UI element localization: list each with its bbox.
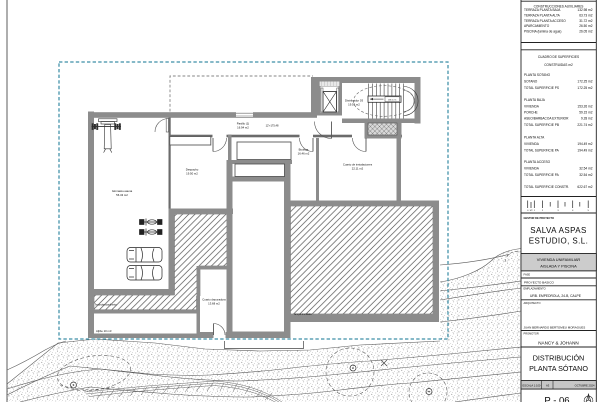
svg-text:ESCALA 1:100: ESCALA 1:100 xyxy=(523,383,541,387)
svg-text:63.73 m2: 63.73 m2 xyxy=(579,14,593,18)
svg-text:SOTANO: SOTANO xyxy=(524,80,538,84)
svg-text:DISTRIBUCIÓN: DISTRIBUCIÓN xyxy=(533,354,585,363)
svg-text:PLANTA BAJA: PLANTA BAJA xyxy=(524,98,546,102)
svg-text:VIVIENDA: VIVIENDA xyxy=(524,167,540,171)
svg-text:26.05 m2: 26.05 m2 xyxy=(579,29,593,33)
svg-text:59.15 m2: 59.15 m2 xyxy=(579,111,593,115)
svg-text:PLANTA SÓTANO: PLANTA SÓTANO xyxy=(529,364,588,373)
svg-text:22.11 m2: 22.11 m2 xyxy=(352,167,364,171)
svg-text:Tendedero-jardineria: Tendedero-jardineria xyxy=(95,304,118,307)
svg-text:P - 06: P - 06 xyxy=(544,396,569,402)
svg-text:622.67 m2: 622.67 m2 xyxy=(577,185,592,189)
svg-text:9.28 m2: 9.28 m2 xyxy=(581,117,593,121)
svg-text:19.50 m2: 19.50 m2 xyxy=(186,172,198,176)
svg-text:TERRAZA PLANTA ALTA: TERRAZA PLANTA ALTA xyxy=(524,14,561,18)
svg-text:TOTAL SUPERFICIE PA: TOTAL SUPERFICIE PA xyxy=(524,149,560,153)
svg-text:26.50 m2: 26.50 m2 xyxy=(579,24,593,28)
svg-text:132.98 m2: 132.98 m2 xyxy=(577,8,592,12)
svg-text:194.49 m2: 194.49 m2 xyxy=(577,142,592,146)
svg-text:16.46 m2: 16.46 m2 xyxy=(298,152,310,156)
svg-text:CUADRO DE SUPERFICIES: CUADRO DE SUPERFICIES xyxy=(538,55,579,59)
svg-text:VIVIENDA: VIVIENDA xyxy=(524,105,540,109)
svg-text:56.43 m2: 56.43 m2 xyxy=(116,193,128,197)
svg-text:SALVA ASPAS: SALVA ASPAS xyxy=(530,226,586,235)
svg-text:PLANTA ALTA: PLANTA ALTA xyxy=(524,136,545,140)
svg-text:TOTAL SUPERFICIE CONSTR.: TOTAL SUPERFICIE CONSTR. xyxy=(524,185,569,189)
svg-text:TOTAL SUPERFICIE PA: TOTAL SUPERFICIE PA xyxy=(524,173,560,177)
svg-text:TOTAL SUPERFICIE PS: TOTAL SUPERFICIE PS xyxy=(524,86,559,90)
svg-text:221.74 m2: 221.74 m2 xyxy=(577,123,592,127)
svg-text:13.68 m2: 13.68 m2 xyxy=(208,302,220,306)
svg-text:PLANTA ACCESO: PLANTA ACCESO xyxy=(524,160,551,164)
svg-text:12'+175,48: 12'+175,48 xyxy=(266,124,279,128)
svg-text:FASE: FASE xyxy=(524,273,531,277)
svg-text:Aljibe 10 m3: Aljibe 10 m3 xyxy=(96,329,112,333)
svg-text:A3: A3 xyxy=(546,383,550,387)
svg-text:ESTUDIO, S.L.: ESTUDIO, S.L. xyxy=(529,237,588,246)
svg-text:OCTUBRE 2024: OCTUBRE 2024 xyxy=(575,383,595,387)
svg-text:153.26 m2: 153.26 m2 xyxy=(577,105,592,109)
svg-text:AISLADA Y PISCINA: AISLADA Y PISCINA xyxy=(540,264,577,269)
svg-text:172.25 m2: 172.25 m2 xyxy=(577,80,592,84)
svg-text:31.72 m2: 31.72 m2 xyxy=(579,19,593,23)
svg-text:PISCINA (lamina de agua): PISCINA (lamina de agua) xyxy=(524,29,561,33)
svg-text:32.54 m2: 32.54 m2 xyxy=(579,173,593,177)
svg-text:PLANTA SOTANO: PLANTA SOTANO xyxy=(524,73,551,77)
svg-text:PROYECTO BASICO: PROYECTO BASICO xyxy=(524,280,554,284)
svg-text:APARCAMIENTO: APARCAMIENTO xyxy=(524,24,550,28)
svg-text:ASEO/BARBACOA EXTERIOR: ASEO/BARBACOA EXTERIOR xyxy=(524,117,569,121)
svg-text:PROMOTOR: PROMOTOR xyxy=(524,332,539,336)
svg-text:JUAN BERNARDO BERTOMEU MORAGUE: JUAN BERNARDO BERTOMEU MORAGUES xyxy=(524,326,586,330)
svg-text:19.59 m2: 19.59 m2 xyxy=(348,103,360,107)
svg-text:16.94 m2: 16.94 m2 xyxy=(237,126,249,130)
svg-text:EMPLAZAMIENTO: EMPLAZAMIENTO xyxy=(524,287,546,291)
svg-text:VIVIENDA: VIVIENDA xyxy=(524,142,540,146)
svg-text:rampa vinculada: rampa vinculada xyxy=(294,313,312,316)
svg-text:VIVIENDA UNIFAMILIAR: VIVIENDA UNIFAMILIAR xyxy=(537,257,581,262)
svg-text:GESTOR DE PROYECTO: GESTOR DE PROYECTO xyxy=(524,216,554,220)
svg-text:172.25 m2: 172.25 m2 xyxy=(577,86,592,90)
svg-text:18h 17,5: 18h 17,5 xyxy=(388,100,397,102)
svg-text:NANCY & JOHANN: NANCY & JOHANN xyxy=(538,341,579,346)
svg-text:TERRAZA PLANTA ACCESO: TERRAZA PLANTA ACCESO xyxy=(524,19,566,23)
svg-text:TOTAL SUPERFICIE PB: TOTAL SUPERFICIE PB xyxy=(524,123,559,127)
svg-text:32.54 m2: 32.54 m2 xyxy=(579,167,593,171)
svg-text:URB. EMPEDROLA, 24-B, CALPE: URB. EMPEDROLA, 24-B, CALPE xyxy=(530,294,582,298)
svg-text:CONSTRUIDAS m2: CONSTRUIDAS m2 xyxy=(544,63,573,67)
svg-text:TERRAZA PLANTA BAJA: TERRAZA PLANTA BAJA xyxy=(524,8,561,12)
svg-text:ARQUITECTO: ARQUITECTO xyxy=(524,301,541,305)
svg-text:PORCHE: PORCHE xyxy=(524,111,538,115)
svg-text:194.49 m2: 194.49 m2 xyxy=(577,149,592,153)
